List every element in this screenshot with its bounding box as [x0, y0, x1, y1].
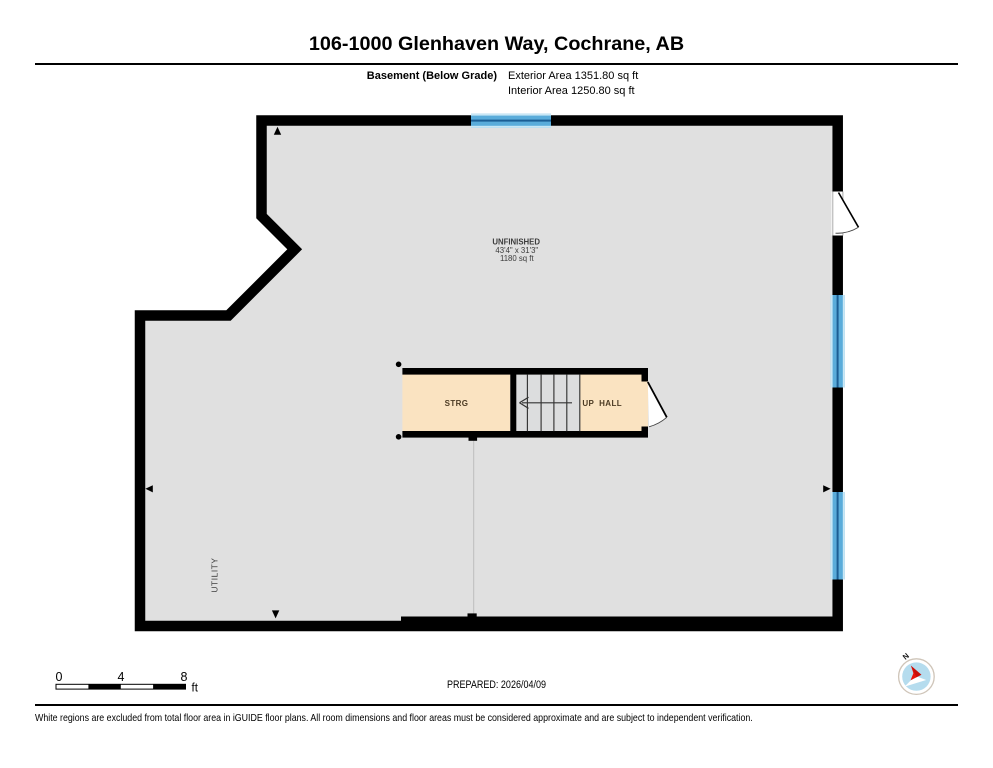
svg-text:STRG: STRG — [445, 399, 469, 408]
svg-text:1180 sq ft: 1180 sq ft — [500, 254, 534, 263]
svg-text:0: 0 — [56, 670, 63, 684]
svg-text:UTILITY: UTILITY — [209, 557, 219, 592]
svg-text:UP HALL: UP HALL — [582, 399, 622, 408]
